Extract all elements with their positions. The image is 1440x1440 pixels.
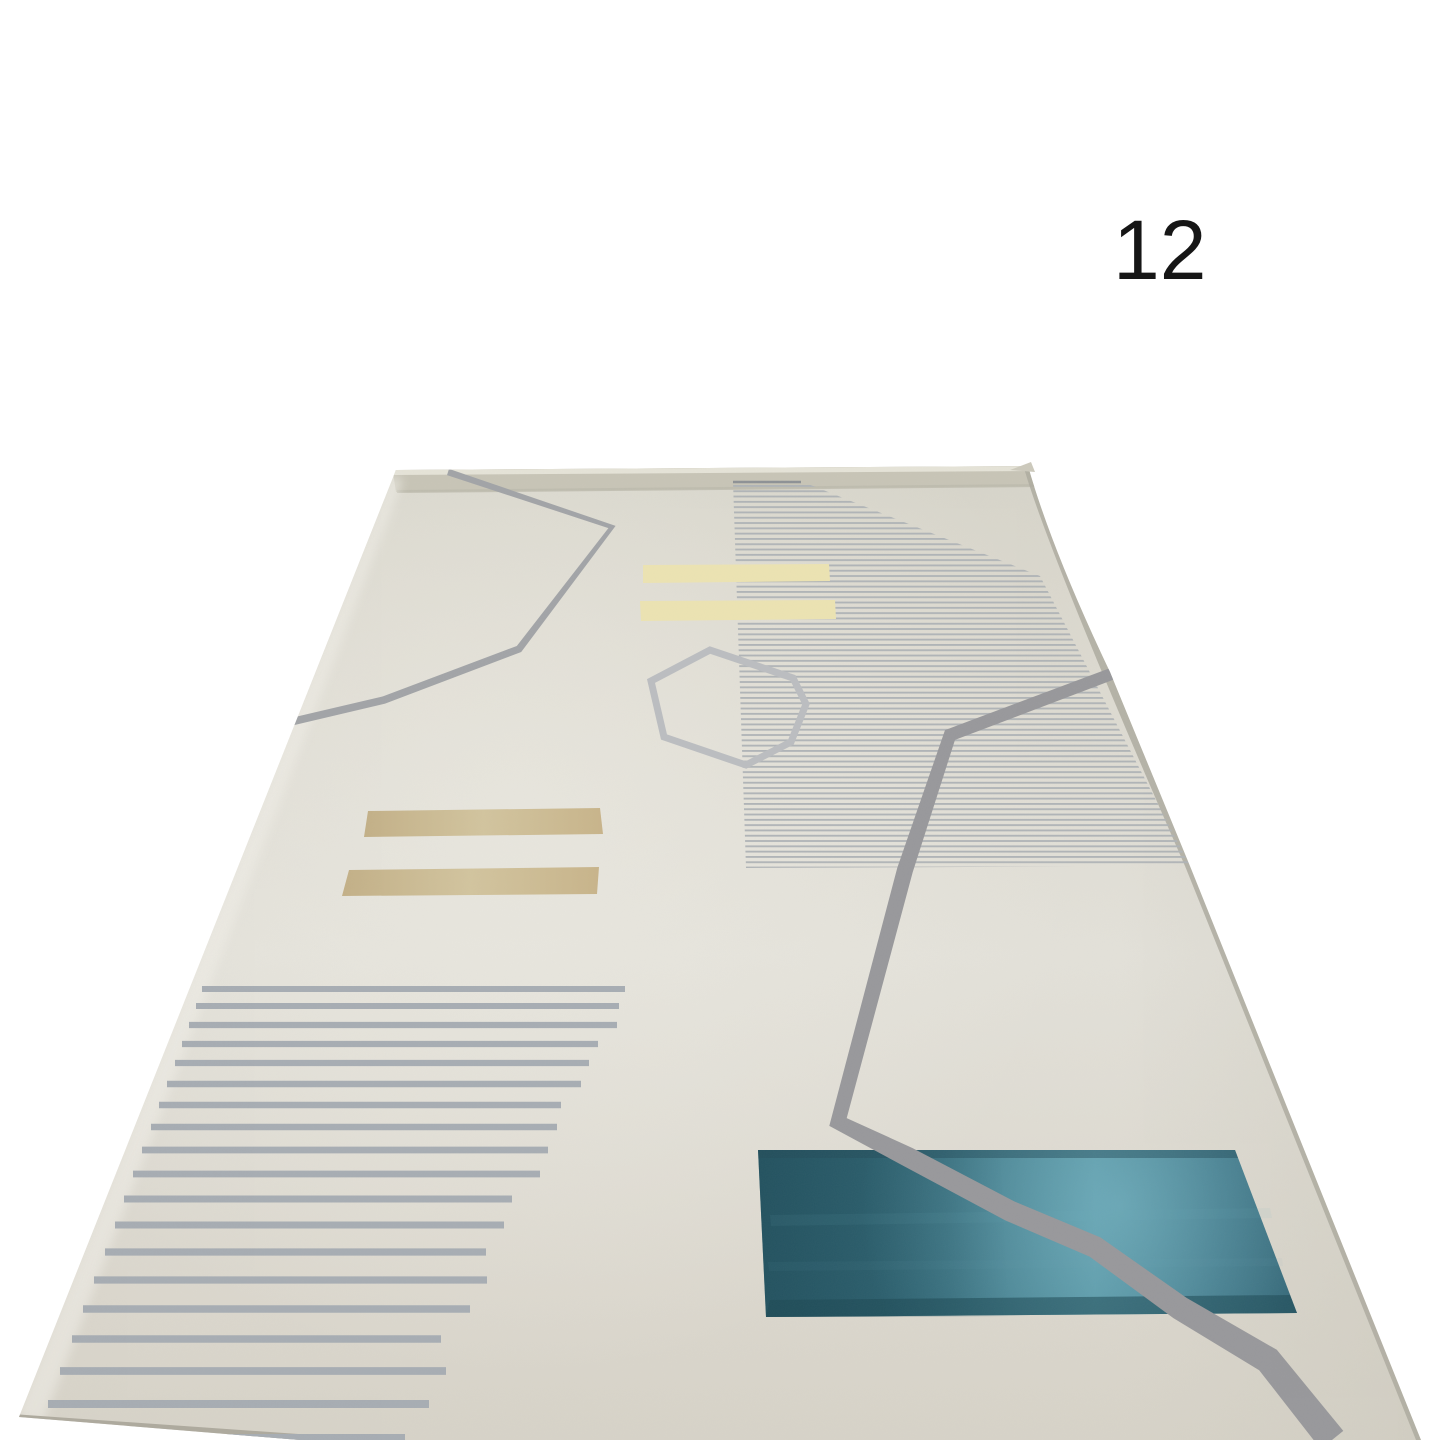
svg-text:12: 12 — [1113, 203, 1206, 297]
